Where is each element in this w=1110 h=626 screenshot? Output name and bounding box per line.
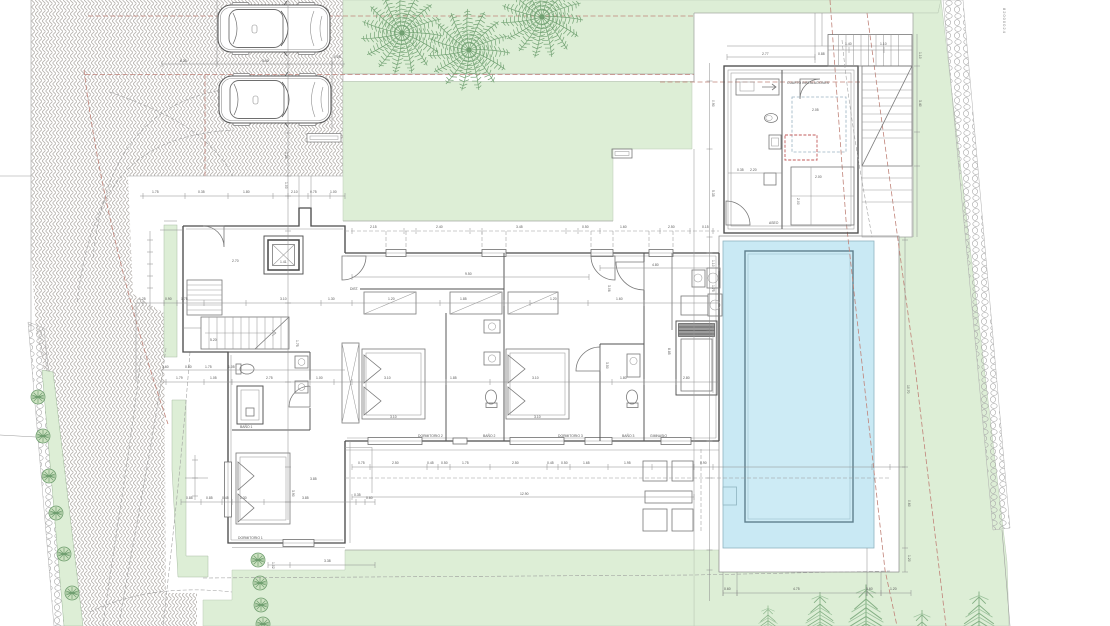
- svg-text:1.02: 1.02: [271, 562, 275, 569]
- svg-text:0.60: 0.60: [907, 500, 911, 507]
- svg-text:1.00: 1.00: [316, 376, 323, 380]
- svg-text:1.20: 1.20: [550, 297, 557, 301]
- svg-text:1.75: 1.75: [181, 297, 188, 301]
- svg-text:3.38: 3.38: [324, 559, 331, 563]
- svg-text:1.60: 1.60: [616, 297, 623, 301]
- svg-text:3.10: 3.10: [384, 376, 391, 380]
- svg-text:0.85: 0.85: [186, 496, 193, 500]
- svg-text:2.80: 2.80: [683, 376, 690, 380]
- svg-text:1.10: 1.10: [880, 42, 887, 46]
- svg-text:1.80: 1.80: [243, 190, 250, 194]
- svg-text:0.75: 0.75: [358, 461, 365, 465]
- svg-text:1.10: 1.10: [918, 52, 922, 59]
- svg-text:1.05: 1.05: [228, 365, 235, 369]
- svg-text:1.95: 1.95: [624, 461, 631, 465]
- svg-text:1.00: 1.00: [284, 182, 288, 189]
- svg-text:6.35: 6.35: [180, 59, 187, 63]
- svg-text:DIST.: DIST.: [350, 287, 358, 291]
- svg-text:BAÑO 2: BAÑO 2: [483, 433, 496, 438]
- svg-text:1.75: 1.75: [205, 365, 212, 369]
- svg-text:1.85: 1.85: [460, 297, 467, 301]
- svg-text:5.20: 5.20: [210, 338, 217, 342]
- svg-text:1.60: 1.60: [162, 365, 169, 369]
- svg-text:0.85: 0.85: [206, 496, 213, 500]
- svg-text:2.50: 2.50: [512, 461, 519, 465]
- svg-text:3.10: 3.10: [532, 376, 539, 380]
- svg-text:DORMITORIO 3: DORMITORIO 3: [558, 434, 583, 438]
- svg-text:DORMITORIO 2: DORMITORIO 2: [418, 434, 443, 438]
- svg-text:0.15: 0.15: [702, 225, 709, 229]
- svg-text:0.50: 0.50: [561, 461, 568, 465]
- svg-text:1.20: 1.20: [907, 555, 911, 562]
- svg-text:0.50: 0.50: [441, 461, 448, 465]
- svg-text:8.85: 8.85: [667, 348, 671, 355]
- svg-text:1.41: 1.41: [280, 260, 287, 264]
- svg-text:CUARTO INSTALACIONES: CUARTO INSTALACIONES: [787, 81, 830, 85]
- svg-text:12.90: 12.90: [520, 492, 529, 496]
- svg-text:1.05: 1.05: [210, 376, 217, 380]
- svg-text:1.10: 1.10: [711, 260, 715, 267]
- svg-text:0.60: 0.60: [366, 496, 373, 500]
- svg-text:1.65: 1.65: [583, 461, 590, 465]
- svg-text:2.05: 2.05: [812, 108, 819, 112]
- svg-text:3.40: 3.40: [918, 100, 922, 107]
- svg-text:2.40: 2.40: [436, 225, 443, 229]
- svg-text:BAÑO 3: BAÑO 3: [622, 433, 635, 438]
- svg-text:2.77: 2.77: [762, 52, 769, 56]
- svg-text:2.50: 2.50: [668, 225, 675, 229]
- svg-text:2.10: 2.10: [291, 190, 298, 194]
- svg-text:0.60: 0.60: [724, 587, 731, 591]
- svg-text:4.80: 4.80: [652, 263, 659, 267]
- svg-text:0.35: 0.35: [737, 168, 744, 172]
- svg-text:3.10: 3.10: [534, 415, 541, 419]
- svg-text:3.85: 3.85: [310, 477, 317, 481]
- svg-text:5.40: 5.40: [262, 59, 269, 63]
- svg-text:0.60: 0.60: [866, 587, 873, 591]
- svg-text:1.30: 1.30: [328, 297, 335, 301]
- svg-text:1.80: 1.80: [620, 376, 627, 380]
- svg-text:1.85: 1.85: [450, 376, 457, 380]
- svg-text:2.70: 2.70: [232, 259, 239, 263]
- svg-text:4.75: 4.75: [793, 587, 800, 591]
- svg-text:1.75: 1.75: [462, 461, 469, 465]
- svg-text:1.79: 1.79: [176, 376, 183, 380]
- svg-text:2.50: 2.50: [392, 461, 399, 465]
- svg-text:3.45: 3.45: [516, 225, 523, 229]
- svg-text:0.90: 0.90: [165, 297, 172, 301]
- svg-text:1.75: 1.75: [152, 190, 159, 194]
- svg-text:2.00: 2.00: [815, 175, 822, 179]
- svg-text:3.10: 3.10: [390, 415, 397, 419]
- svg-text:3.50: 3.50: [605, 362, 609, 369]
- svg-text:0.50: 0.50: [185, 365, 192, 369]
- svg-text:DORMITORIO 1: DORMITORIO 1: [238, 536, 263, 540]
- svg-text:1.75: 1.75: [295, 340, 299, 347]
- svg-text:1.20: 1.20: [388, 297, 395, 301]
- svg-text:GIMNASIO: GIMNASIO: [650, 434, 667, 438]
- svg-text:3.10: 3.10: [280, 297, 287, 301]
- svg-text:2.15: 2.15: [370, 225, 377, 229]
- svg-text:3.06: 3.06: [607, 285, 611, 292]
- svg-text:9.50: 9.50: [465, 272, 472, 276]
- svg-text:0.45: 0.45: [222, 496, 229, 500]
- svg-text:0.88: 0.88: [818, 52, 825, 56]
- svg-text:2.75: 2.75: [266, 376, 273, 380]
- svg-text:1.40: 1.40: [845, 42, 852, 46]
- svg-text:1.60: 1.60: [620, 225, 627, 229]
- svg-text:1.25: 1.25: [139, 297, 146, 301]
- svg-text:0.90: 0.90: [700, 461, 707, 465]
- svg-text:1.20: 1.20: [284, 152, 288, 159]
- svg-text:0.90: 0.90: [711, 100, 715, 107]
- svg-text:5.35: 5.35: [711, 190, 715, 197]
- svg-text:1.75: 1.75: [711, 285, 715, 292]
- svg-text:0.45: 0.45: [547, 461, 554, 465]
- svg-text:82000024: 82000024: [1002, 8, 1007, 34]
- svg-text:BAÑO 1: BAÑO 1: [240, 424, 253, 429]
- svg-text:0.05: 0.05: [334, 55, 341, 59]
- svg-text:0.35: 0.35: [354, 493, 361, 497]
- svg-text:3.85: 3.85: [302, 496, 309, 500]
- svg-text:3.90: 3.90: [291, 490, 295, 497]
- svg-text:2.20: 2.20: [750, 168, 757, 172]
- svg-text:0.45: 0.45: [427, 461, 434, 465]
- svg-text:0.50: 0.50: [582, 225, 589, 229]
- svg-text:1.00: 1.00: [330, 190, 337, 194]
- svg-text:2.00: 2.00: [796, 198, 800, 205]
- svg-text:1.30: 1.30: [240, 496, 247, 500]
- svg-text:1.20: 1.20: [890, 587, 897, 591]
- svg-text:0.35: 0.35: [198, 190, 205, 194]
- svg-text:10.70: 10.70: [906, 385, 910, 394]
- svg-text:ASEO: ASEO: [769, 221, 779, 225]
